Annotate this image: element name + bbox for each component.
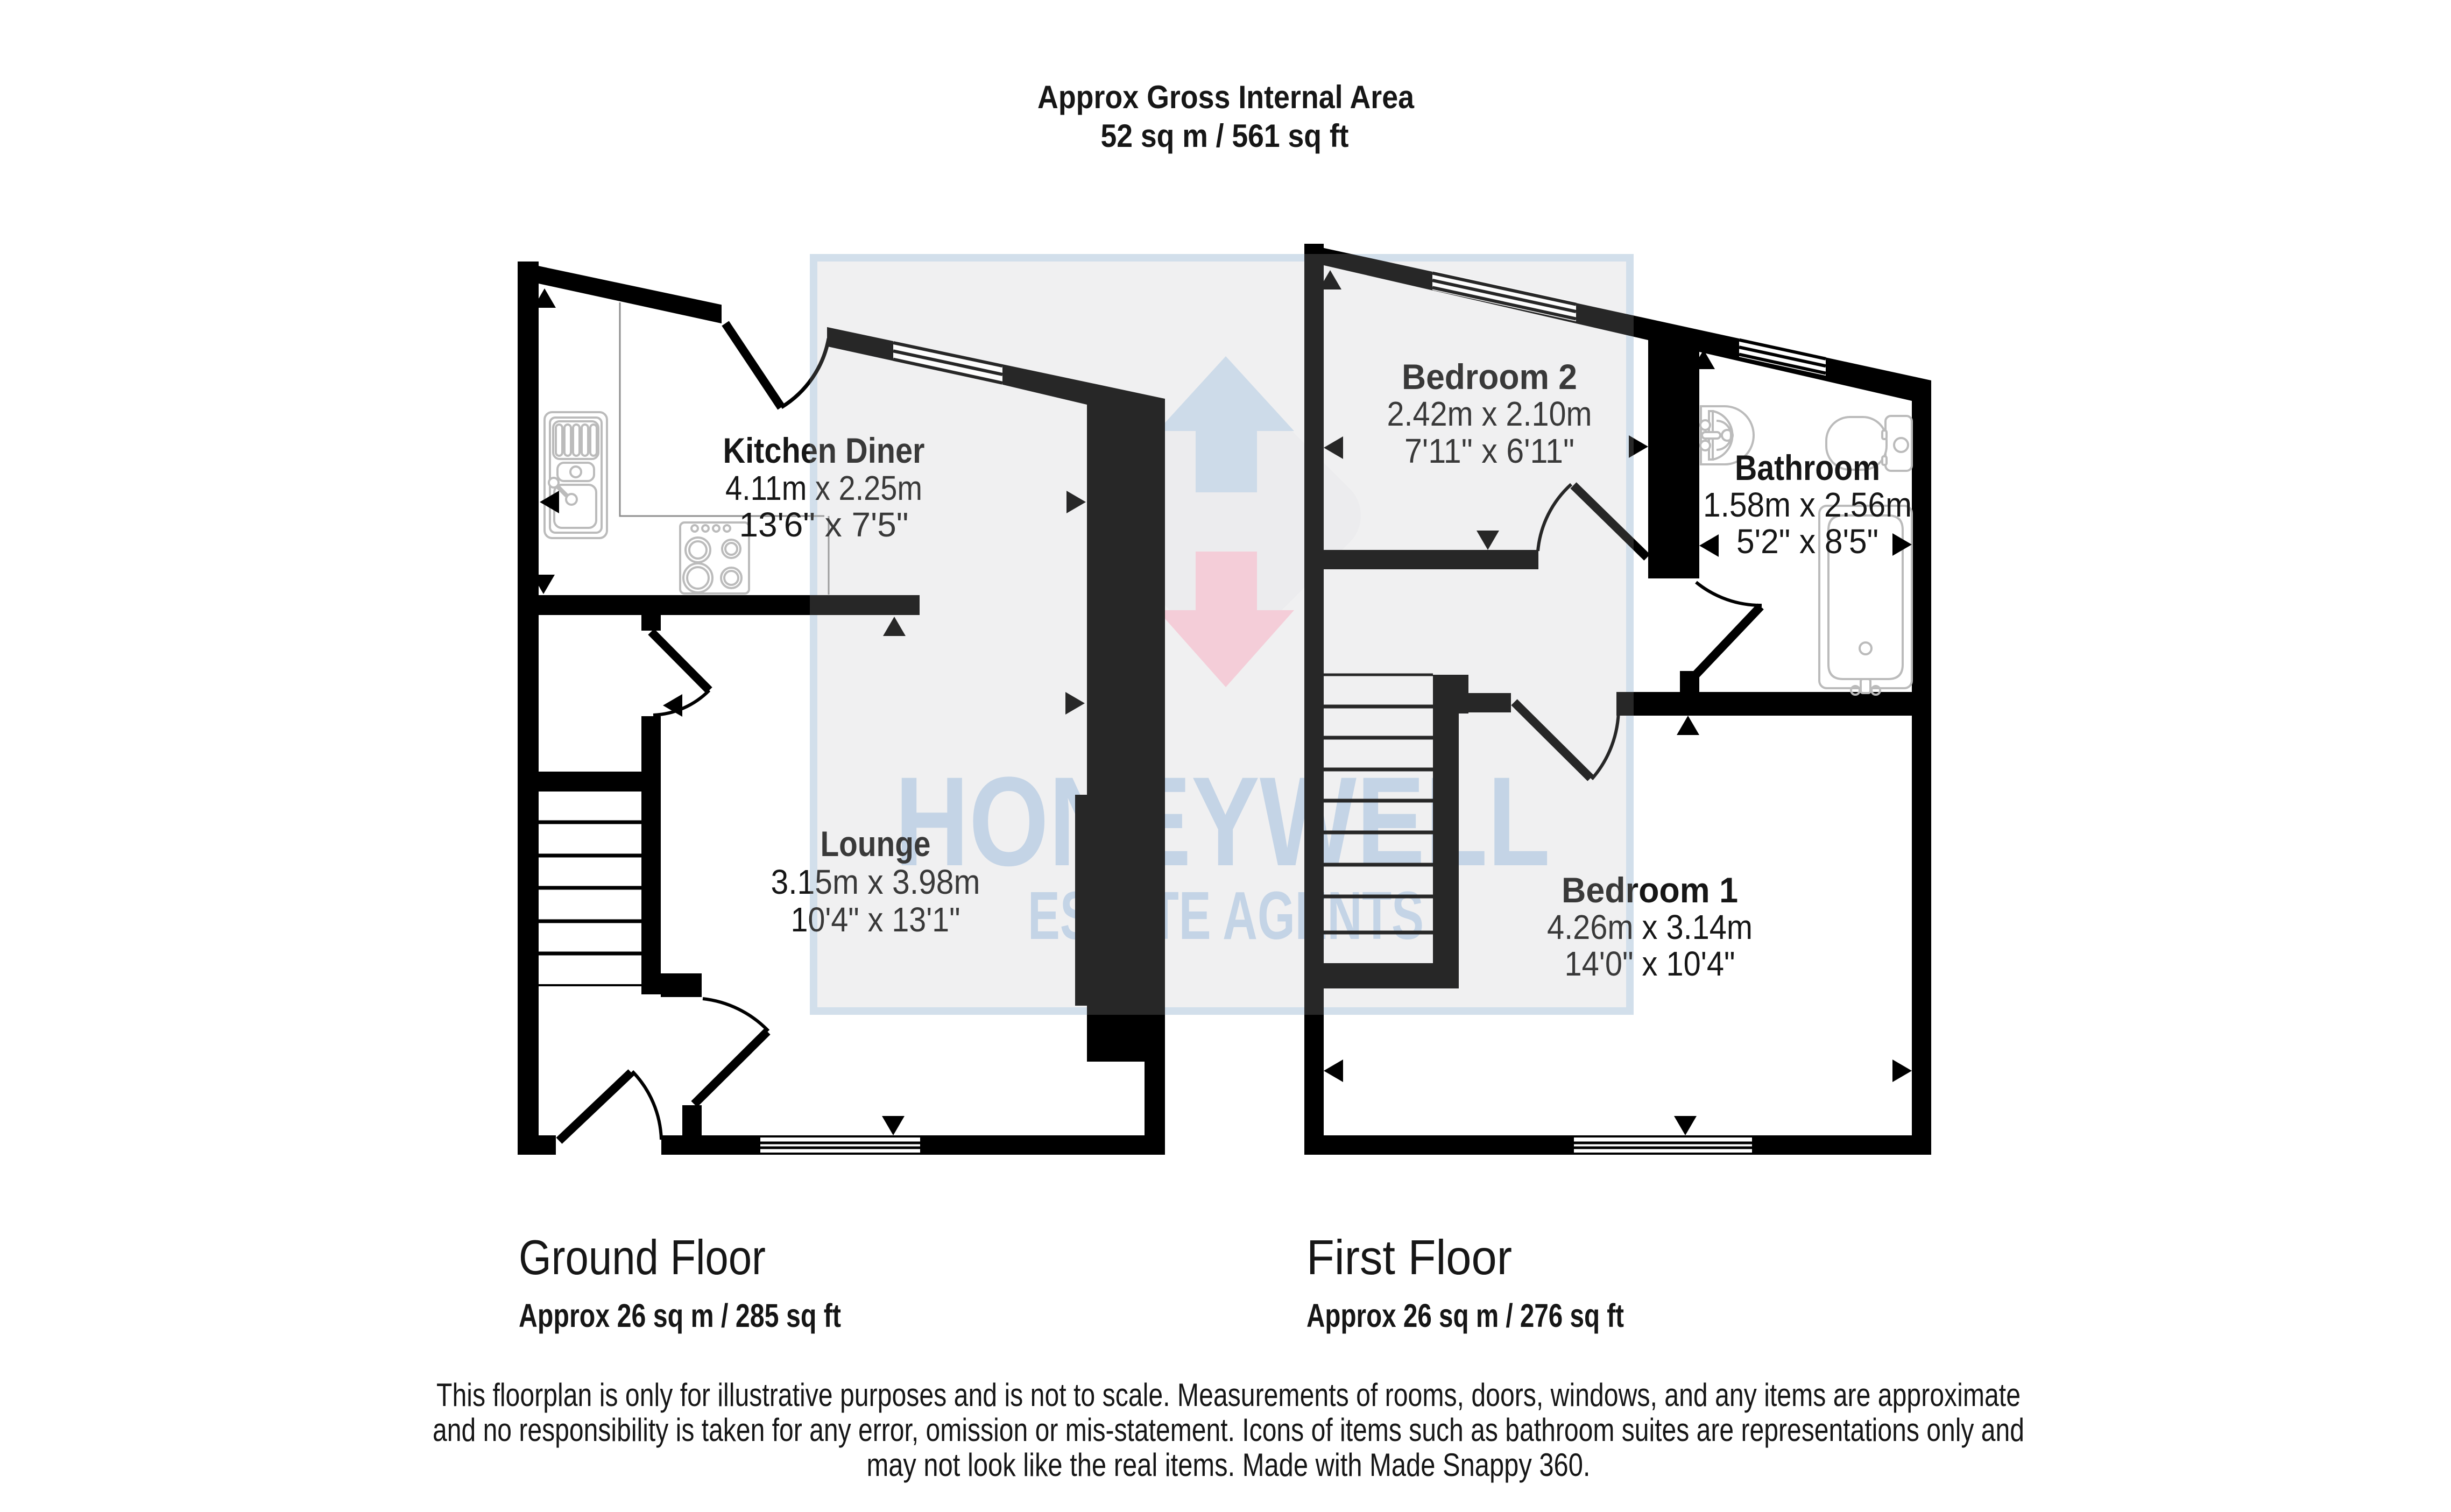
svg-text:may not look like the real ite: may not look like the real items. Made w… — [867, 1447, 1591, 1483]
svg-text:Ground Floor: Ground Floor — [519, 1231, 766, 1285]
svg-text:52 sq m / 561 sq ft: 52 sq m / 561 sq ft — [1101, 118, 1349, 154]
svg-text:First Floor: First Floor — [1306, 1231, 1512, 1285]
svg-text:and no responsibility is taken: and no responsibility is taken for any e… — [433, 1412, 2024, 1448]
svg-text:Approx 26 sq m / 276 sq ft: Approx 26 sq m / 276 sq ft — [1306, 1297, 1624, 1334]
svg-text:Bathroom: Bathroom — [1735, 448, 1880, 487]
svg-text:1.58m x 2.56m: 1.58m x 2.56m — [1703, 485, 1912, 524]
svg-text:This floorplan is only for ill: This floorplan is only for illustrative … — [436, 1377, 2021, 1413]
svg-text:5'2" x 8'5": 5'2" x 8'5" — [1736, 522, 1878, 561]
svg-text:Approx Gross Internal Area: Approx Gross Internal Area — [1037, 79, 1415, 115]
svg-text:Approx 26 sq m / 285 sq ft: Approx 26 sq m / 285 sq ft — [519, 1297, 841, 1334]
